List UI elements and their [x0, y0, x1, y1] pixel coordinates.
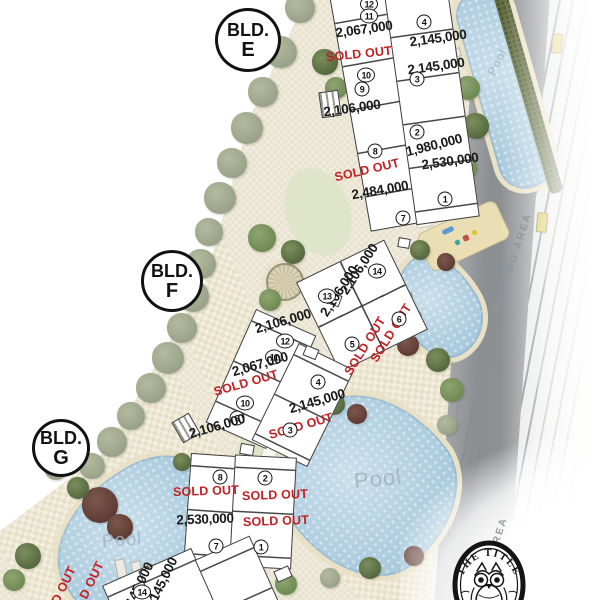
top-labels-layer: PARKING AREA	[0, 0, 600, 600]
unit-number-badge: 3	[283, 423, 298, 438]
sold-out-label: SOLD OUT	[173, 483, 240, 499]
pool-label: Pool	[101, 528, 142, 552]
unit-number-badge: 10	[357, 68, 375, 83]
owl-logo: THE TITLE	[448, 538, 530, 600]
unit-number-badge: 4	[311, 375, 326, 390]
unit-number-badge: 7	[396, 211, 411, 226]
building-g-badge-line1: BLD.	[40, 429, 82, 447]
building-e-badge: BLD. E	[215, 8, 281, 72]
building-g-badge: BLD. G	[32, 419, 90, 477]
unit-number-badge: 3	[410, 72, 425, 87]
unit-number-badge: 2	[410, 125, 425, 140]
building-e-badge-line2: E	[241, 40, 254, 60]
site-plan: 12112,067,000SOLD OUT1092,106,0008SOLD O…	[0, 0, 600, 600]
unit-number-badge: 13	[318, 289, 336, 304]
building-f-badge: BLD. F	[141, 250, 203, 312]
building-f-badge-line1: BLD.	[151, 262, 193, 280]
unit-number-badge: 10	[236, 396, 254, 411]
unit-number-badge: 9	[355, 82, 370, 97]
unit-number-badge: 2	[258, 471, 273, 486]
building-f-badge-line2: F	[166, 281, 178, 301]
unit-number-badge: 6	[392, 312, 407, 327]
unit-number-badge: 1	[254, 540, 269, 555]
unit-number-badge: 7	[209, 539, 224, 554]
building-e-badge-line1: BLD.	[227, 21, 269, 39]
price-label: 2,530,000	[176, 511, 234, 528]
unit-number-badge: 14	[368, 264, 386, 279]
unit-number-badge: 5	[345, 337, 360, 352]
unit-number-badge: 14	[133, 585, 151, 600]
building-g-badge-line2: G	[53, 448, 69, 468]
unit-number-badge: 8	[368, 144, 383, 159]
sold-out-label: SOLD OUT	[242, 487, 309, 503]
pool-label: Pool	[353, 464, 404, 495]
unit-number-badge: 8	[213, 470, 228, 485]
unit-number-badge: 12	[276, 334, 294, 349]
sold-out-label: SOLD OUT	[243, 513, 310, 529]
unit-number-badge: 4	[417, 15, 432, 30]
unit-number-badge: 1	[438, 192, 453, 207]
